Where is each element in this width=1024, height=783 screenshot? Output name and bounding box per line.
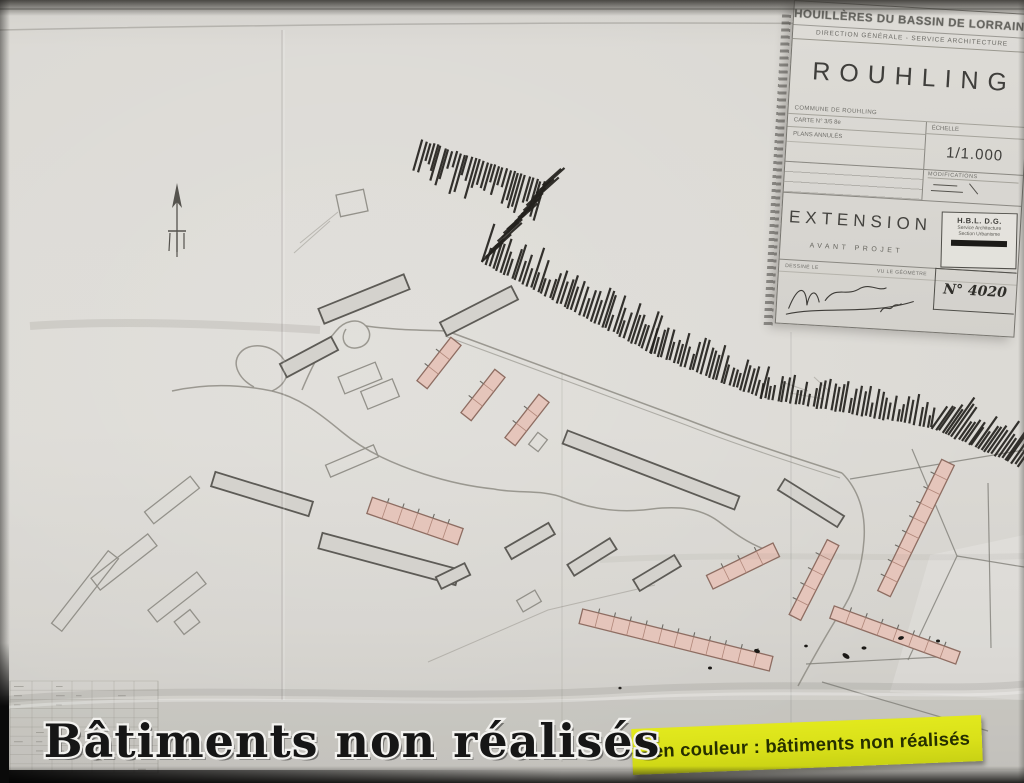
doc-number: N° 4020: [933, 268, 1016, 315]
scale-column: ÉCHELLE 1/1.000: [924, 122, 1024, 175]
ink-spot: [936, 640, 940, 643]
dessine-label: DESSINÉ LE: [785, 260, 819, 273]
carte-column: CARTE N° 3/5 8e PLANS ANNULÉS: [785, 114, 927, 169]
fold-crease: [600, 556, 1024, 560]
ink-spot: [862, 646, 867, 649]
ink-spot: [708, 667, 712, 670]
scale-value: 1/1.000: [924, 134, 1024, 175]
video-frame: HOUILLÈRES DU BASSIN DE LORRAINE DIRECTI…: [0, 0, 1024, 783]
legend-text: - en couleur : bâtiments non réalisés: [641, 727, 971, 762]
title-block: HOUILLÈRES DU BASSIN DE LORRAINE DIRECTI…: [775, 0, 1024, 338]
redaction-bar: [951, 240, 1007, 247]
architecture-stamp: H.B.L. D.G. Service Architecture Section…: [940, 211, 1017, 269]
handwritten-marks: [927, 178, 988, 198]
ink-spot: [804, 645, 808, 648]
stamp-section: Section Urbanisme: [944, 231, 1014, 238]
signature-scribble: [780, 274, 922, 326]
modifications-cell: MODIFICATIONS: [922, 170, 1023, 206]
